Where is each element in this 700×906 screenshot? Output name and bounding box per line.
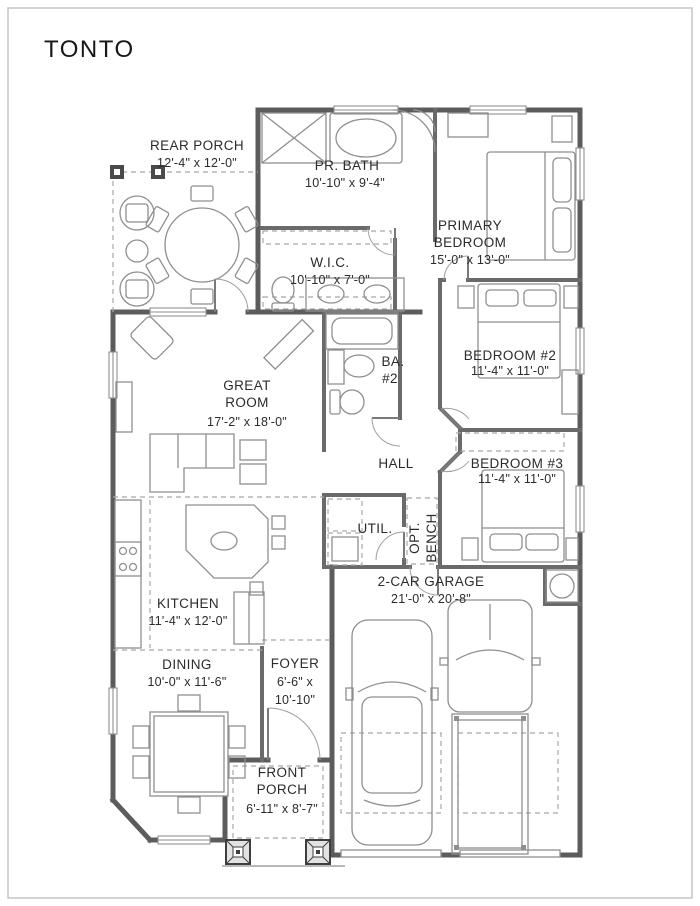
pr-bath-dims: 10'-10" x 9'-4" <box>305 176 385 190</box>
sink <box>344 355 374 377</box>
plan-title: TONTO <box>44 36 135 63</box>
window <box>576 328 584 374</box>
foyer-dims-1: 6'-6" x <box>277 675 314 689</box>
nightstand <box>462 538 478 560</box>
dining-furniture <box>133 695 245 813</box>
bath2-door <box>372 418 400 446</box>
great-room-label-1: GREAT <box>223 378 271 393</box>
window <box>150 308 206 316</box>
dresser <box>448 113 488 137</box>
rear-porch-door <box>215 279 248 312</box>
dining-dims: 10'-0" x 11'-6" <box>148 675 227 689</box>
garage-contents <box>346 570 578 854</box>
great-room-label-2: ROOM <box>225 395 269 410</box>
garage-label: 2-CAR GARAGE <box>378 574 485 589</box>
chair <box>178 695 200 711</box>
opt-bench-label-1: OPT. <box>407 522 422 554</box>
bedroom3-label: BEDROOM #3 <box>471 456 564 471</box>
window <box>576 486 584 532</box>
front-porch-label-2: PORCH <box>257 782 308 797</box>
column <box>306 840 330 864</box>
nightstand <box>566 538 578 560</box>
dining-label: DINING <box>162 657 212 672</box>
toilet <box>340 390 364 414</box>
great-room-dims: 17'-2" x 18'-0" <box>207 415 287 429</box>
floor-plan-drawing: TONTO <box>0 0 700 906</box>
window <box>158 836 210 844</box>
bathtub <box>330 113 402 163</box>
hall-label: HALL <box>378 456 413 471</box>
counter <box>115 500 141 648</box>
dresser <box>562 370 578 414</box>
foyer-label: FOYER <box>271 656 320 671</box>
range <box>115 542 141 576</box>
rear-porch-label: REAR PORCH <box>150 138 244 153</box>
column <box>226 840 250 864</box>
sectional-sofa <box>150 434 234 492</box>
util-door <box>376 532 404 560</box>
util-label: UTIL. <box>357 521 392 536</box>
bath2-label-2: #2 <box>382 371 398 386</box>
vanity <box>328 350 344 384</box>
chair <box>229 726 245 748</box>
front-porch-dims: 6'-11" x 8'-7" <box>246 802 318 816</box>
shower <box>262 113 326 163</box>
front-door <box>268 708 320 760</box>
foyer-dims-2: 10'-10" <box>275 693 315 707</box>
chair <box>133 726 149 748</box>
rear-porch-dims: 12'-4" x 12'-0" <box>157 156 237 170</box>
primary-bedroom-label-2: BEDROOM <box>434 235 507 250</box>
stool <box>272 536 285 549</box>
stool <box>250 582 263 595</box>
corner-chair <box>129 315 174 360</box>
front-porch-label-1: FRONT <box>258 765 307 780</box>
utility-appliances <box>332 537 358 561</box>
window <box>109 688 117 734</box>
front-porch-columns <box>222 840 345 866</box>
bath2-label-1: BA. <box>382 354 405 369</box>
chair <box>178 797 200 813</box>
wic-dims: 10'-10" x 7'-0" <box>290 273 370 287</box>
nightstand <box>552 116 572 142</box>
primary-bedroom-label-1: PRIMARY <box>438 218 502 233</box>
dining-table <box>150 712 228 796</box>
ottoman <box>240 464 266 484</box>
tv-console <box>116 382 132 432</box>
ottoman <box>240 440 266 460</box>
stool <box>272 516 285 529</box>
bedroom2-label: BEDROOM #2 <box>464 348 557 363</box>
nightstand <box>458 286 474 308</box>
chair <box>133 756 149 778</box>
media-console <box>264 320 313 369</box>
bedroom3-dims: 11'-4" x 11'-0" <box>478 472 556 486</box>
floor-plan-page: TONTO <box>0 0 700 906</box>
window <box>576 148 584 200</box>
corner-shower <box>393 110 435 152</box>
truck <box>440 600 540 854</box>
garage-dims: 21'-0" x 20'-8" <box>391 592 471 606</box>
bedroom2-dims: 11'-4" x 11'-0" <box>471 364 549 378</box>
opt-bench-label-2: BENCH <box>424 513 439 562</box>
nightstand <box>564 286 578 308</box>
primary-bedroom-dims: 15'-0" x 13'-0" <box>430 253 510 267</box>
island <box>186 505 268 578</box>
great-room-furniture <box>116 315 313 492</box>
island-sink <box>211 532 237 550</box>
wic-label: W.I.C. <box>310 255 349 270</box>
pr-bath-label: PR. BATH <box>315 158 379 173</box>
water-heater <box>546 570 578 602</box>
washer <box>332 537 358 561</box>
kitchen-dims: 11'-4" x 12'-0" <box>149 614 228 628</box>
kitchen-label: KITCHEN <box>157 596 219 611</box>
